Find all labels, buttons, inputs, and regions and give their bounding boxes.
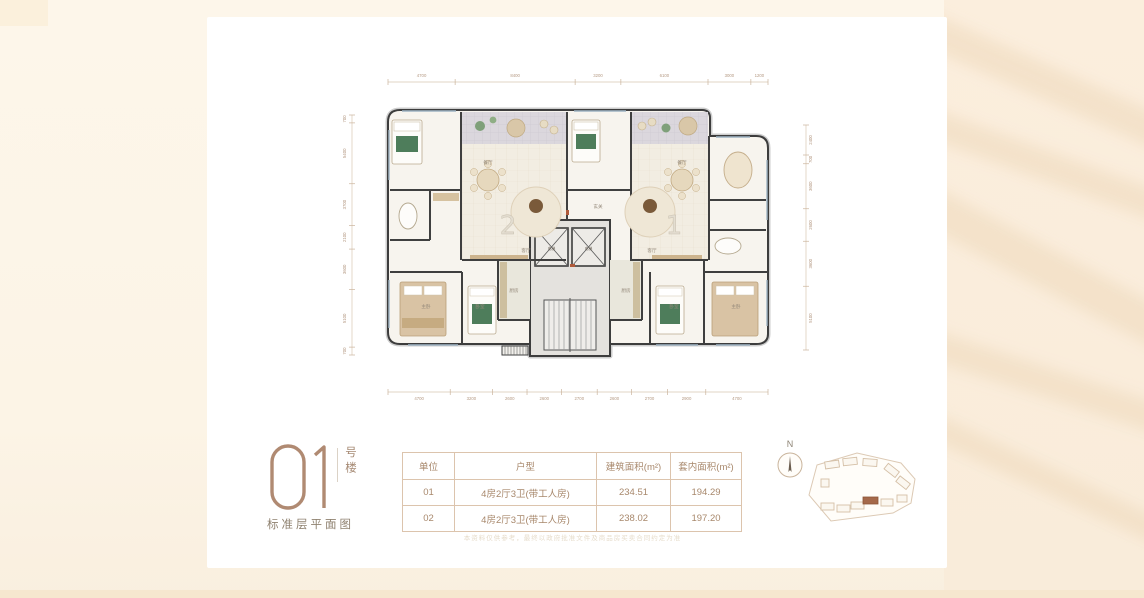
corner-accent xyxy=(0,0,48,26)
svg-text:1200: 1200 xyxy=(755,73,765,78)
svg-text:5400: 5400 xyxy=(342,148,347,158)
unit-table-header-row: 单位户型建筑面积(m²)套内面积(m²) xyxy=(403,453,742,480)
unit-table-header-0: 单位 xyxy=(403,453,455,480)
room-label: 厨房 xyxy=(621,287,631,294)
room-label: 玄关 xyxy=(593,203,603,210)
svg-text:3200: 3200 xyxy=(467,396,477,401)
svg-text:700: 700 xyxy=(342,347,347,355)
table-row: 024房2厅3卫(带工人房)238.02197.20 xyxy=(403,506,742,532)
svg-text:700: 700 xyxy=(342,115,347,123)
site-plan-map xyxy=(803,445,921,533)
elevator-core xyxy=(530,220,610,356)
room-label: 主卧 xyxy=(731,303,741,310)
room-label: 客厅 xyxy=(647,247,657,254)
current-building-marker xyxy=(863,497,878,504)
svg-text:2900: 2900 xyxy=(682,396,692,401)
svg-text:3600: 3600 xyxy=(808,181,813,191)
unit-table-header-3: 套内面积(m²) xyxy=(671,453,742,480)
room-label: 主卧 xyxy=(421,303,431,310)
building-number-text: 01 xyxy=(267,440,268,441)
room-label: 厨房 xyxy=(509,287,519,294)
drying-rack xyxy=(502,346,528,355)
unit-table-header-1: 户型 xyxy=(455,453,597,480)
table-cell: 4房2厅3卫(带工人房) xyxy=(455,480,597,506)
table-cell: 4房2厅3卫(带工人房) xyxy=(455,506,597,532)
room-label: 客厅 xyxy=(521,247,531,254)
svg-text:2600: 2600 xyxy=(505,396,515,401)
svg-text:2600: 2600 xyxy=(610,396,620,401)
palm-shadow-backdrop xyxy=(944,0,1144,598)
content-card: 4700840032006100300012004700320026002600… xyxy=(207,17,947,568)
floor-plan-svg: 4700840032006100300012004700320026002600… xyxy=(330,60,835,415)
building-suffix: 号楼 xyxy=(343,446,357,477)
disclaimer-text: 本资料仅供参考，最终以政府批准文件及商品房买卖合同约定为准 xyxy=(402,532,743,542)
room-label: 卧室 xyxy=(475,303,485,310)
table-cell: 234.51 xyxy=(597,480,671,506)
table-cell: 02 xyxy=(403,506,455,532)
room-label: 餐厅 xyxy=(677,159,687,166)
svg-text:3600: 3600 xyxy=(342,264,347,274)
svg-text:4700: 4700 xyxy=(417,73,427,78)
unit-number-label: 2 xyxy=(500,211,517,241)
floor-plan: 4700840032006100300012004700320026002600… xyxy=(330,60,835,415)
building-number-glyph xyxy=(269,442,335,512)
elevator-label: 电梯 xyxy=(585,246,593,251)
svg-text:2100: 2100 xyxy=(342,232,347,242)
svg-text:2700: 2700 xyxy=(575,396,585,401)
room-label: 餐厅 xyxy=(483,159,493,166)
svg-text:2400: 2400 xyxy=(808,135,813,145)
svg-text:3000: 3000 xyxy=(725,73,735,78)
svg-text:N: N xyxy=(787,439,794,449)
svg-text:5100: 5100 xyxy=(808,313,813,323)
svg-text:8400: 8400 xyxy=(510,73,520,78)
plan-caption: 标准层平面图 xyxy=(267,516,354,532)
svg-text:2600: 2600 xyxy=(539,396,549,401)
svg-text:4700: 4700 xyxy=(732,396,742,401)
title-divider xyxy=(337,448,338,482)
svg-text:3200: 3200 xyxy=(593,73,603,78)
svg-text:3700: 3700 xyxy=(342,199,347,209)
unit-table-header-2: 建筑面积(m²) xyxy=(597,453,671,480)
unit-number-label: 1 xyxy=(666,211,683,241)
table-cell: 01 xyxy=(403,480,455,506)
table-cell: 238.02 xyxy=(597,506,671,532)
palm-frond xyxy=(944,324,1144,445)
palm-frond xyxy=(944,412,1144,554)
table-row: 014房2厅3卫(带工人房)234.51194.29 xyxy=(403,480,742,506)
table-cell: 194.29 xyxy=(671,480,742,506)
table-cell: 197.20 xyxy=(671,506,742,532)
building-title-block: 01 号楼 标准层平面图 xyxy=(267,440,417,550)
svg-text:2600: 2600 xyxy=(808,220,813,230)
bottom-accent-strip xyxy=(0,590,1144,598)
room-label: 卧室 xyxy=(669,303,679,310)
staircase xyxy=(544,298,596,352)
svg-text:5100: 5100 xyxy=(342,313,347,323)
svg-text:6100: 6100 xyxy=(660,73,670,78)
svg-text:700: 700 xyxy=(808,155,813,163)
svg-text:3600: 3600 xyxy=(808,258,813,268)
elevator-label: 电梯 xyxy=(548,246,556,251)
svg-text:4700: 4700 xyxy=(414,396,424,401)
unit-table: 单位户型建筑面积(m²)套内面积(m²) 014房2厅3卫(带工人房)234.5… xyxy=(402,452,742,532)
page: { "title_block": { "building_number": "0… xyxy=(0,0,1144,598)
svg-text:2700: 2700 xyxy=(645,396,655,401)
